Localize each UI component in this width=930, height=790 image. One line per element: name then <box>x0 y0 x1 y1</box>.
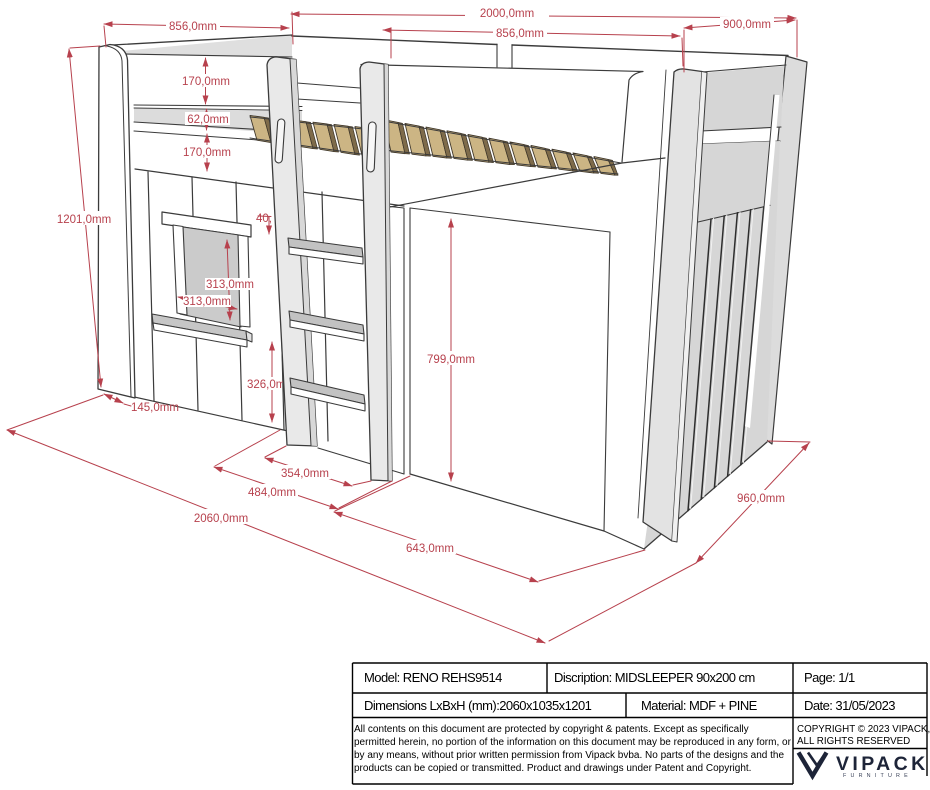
svg-text:Model: RENO REHS9514: Model: RENO REHS9514 <box>364 670 502 685</box>
svg-text:2060,0mm: 2060,0mm <box>194 513 248 525</box>
svg-text:40,: 40, <box>256 213 272 225</box>
svg-text:permitted herein, no portion o: permitted herein, no portion of the info… <box>354 737 792 748</box>
svg-text:354,0mm: 354,0mm <box>281 468 329 480</box>
svg-text:All contents on this document: All contents on this document are protec… <box>354 724 749 735</box>
svg-text:170,0mm: 170,0mm <box>183 147 231 159</box>
svg-text:ALL RIGHTS RESERVED: ALL RIGHTS RESERVED <box>797 736 910 747</box>
svg-text:170,0mm: 170,0mm <box>182 76 230 88</box>
svg-text:856,0mm: 856,0mm <box>496 28 544 40</box>
svg-text:960,0mm: 960,0mm <box>737 493 785 505</box>
svg-text:Date: 31/05/2023: Date: 31/05/2023 <box>804 698 895 713</box>
svg-text:62,0mm: 62,0mm <box>187 114 229 126</box>
svg-text:145,0mm: 145,0mm <box>131 402 179 414</box>
svg-text:313,0mm: 313,0mm <box>183 296 231 308</box>
svg-text:900,0mm: 900,0mm <box>723 19 771 31</box>
svg-text:1201,0mm: 1201,0mm <box>57 214 111 226</box>
svg-text:products can be copied or tran: products can be copied or transmitted. P… <box>354 763 751 774</box>
svg-text:2000,0mm: 2000,0mm <box>480 8 534 20</box>
svg-text:FURNITURE: FURNITURE <box>843 773 912 779</box>
svg-text:643,0mm: 643,0mm <box>406 543 454 555</box>
svg-text:Discription: MIDSLEEPER 90x200: Discription: MIDSLEEPER 90x200 cm <box>554 670 755 685</box>
svg-text:Page: 1/1: Page: 1/1 <box>804 670 855 685</box>
svg-text:856,0mm: 856,0mm <box>169 21 217 33</box>
svg-text:799,0mm: 799,0mm <box>427 354 475 366</box>
svg-text:Material: MDF + PINE: Material: MDF + PINE <box>641 698 758 713</box>
svg-text:313,0mm: 313,0mm <box>206 279 254 291</box>
svg-text:by any means, without prior wr: by any means, without prior written perm… <box>354 750 784 761</box>
svg-text:VIPACK: VIPACK <box>836 753 929 775</box>
svg-text:484,0mm: 484,0mm <box>248 487 296 499</box>
svg-text:COPYRIGHT © 2023 VIPACK,: COPYRIGHT © 2023 VIPACK, <box>797 724 930 735</box>
svg-text:Dimensions LxBxH (mm):2060x103: Dimensions LxBxH (mm):2060x1035x1201 <box>364 698 592 713</box>
